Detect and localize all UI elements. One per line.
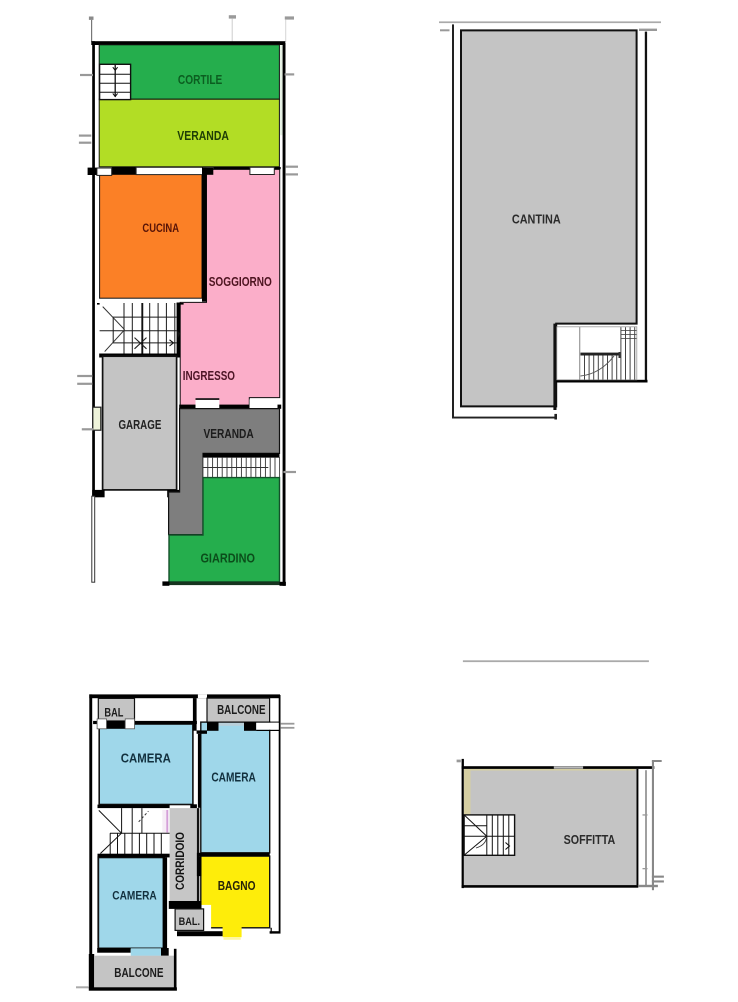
svg-text:SOFFITTA: SOFFITTA (564, 833, 616, 847)
svg-text:CUCINA: CUCINA (142, 221, 179, 235)
svg-text:BAGNO: BAGNO (218, 879, 256, 893)
svg-text:BALCONE: BALCONE (217, 703, 265, 717)
svg-text:INGRESSO: INGRESSO (183, 369, 235, 383)
svg-text:GIARDINO: GIARDINO (200, 552, 255, 566)
svg-text:SOGGIORNO: SOGGIORNO (209, 275, 272, 289)
svg-text:BAL.: BAL. (179, 916, 200, 928)
svg-text:CORRIDOIO: CORRIDOIO (173, 832, 187, 890)
svg-text:CAMERA: CAMERA (112, 888, 157, 902)
svg-text:BAL: BAL (104, 707, 123, 719)
svg-text:VERANDA: VERANDA (204, 427, 254, 441)
svg-text:VERANDA: VERANDA (177, 129, 229, 143)
svg-text:BALCONE: BALCONE (114, 966, 163, 980)
svg-text:CORTILE: CORTILE (178, 73, 222, 87)
svg-text:CAMERA: CAMERA (211, 771, 256, 785)
svg-text:GARAGE: GARAGE (118, 418, 161, 432)
svg-text:CAMERA: CAMERA (121, 752, 171, 766)
svg-text:CANTINA: CANTINA (512, 212, 561, 226)
